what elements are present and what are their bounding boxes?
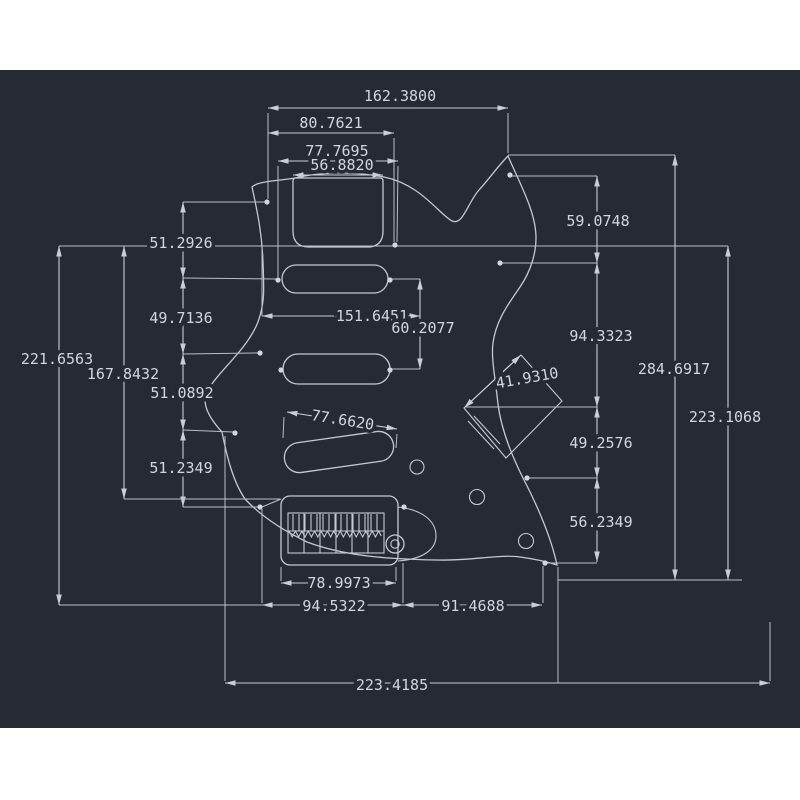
dim-label-223-4185: 223.4185 bbox=[356, 676, 428, 694]
dim-label-80-7621: 80.7621 bbox=[299, 114, 362, 132]
dim-label-94-5322: 94.5322 bbox=[302, 597, 365, 615]
drawing-background bbox=[0, 70, 800, 728]
cad-drawing-canvas: 162.3800 80.7621 77.7695 56.8820 51.2926… bbox=[0, 0, 800, 800]
dim-label-51-0892: 51.0892 bbox=[150, 384, 213, 402]
dim-label-221-6563: 221.6563 bbox=[21, 350, 93, 368]
dim-label-51-2926: 51.2926 bbox=[149, 234, 212, 252]
dim-label-59-0748: 59.0748 bbox=[566, 212, 629, 230]
dim-label-162-3800: 162.3800 bbox=[364, 87, 436, 105]
cad-screenshot: 162.3800 80.7621 77.7695 56.8820 51.2926… bbox=[0, 0, 800, 800]
dim-label-60-2077: 60.2077 bbox=[391, 319, 454, 337]
dim-label-284-6917: 284.6917 bbox=[638, 360, 710, 378]
dim-label-56-2349: 56.2349 bbox=[569, 513, 632, 531]
dim-label-49-2576: 49.2576 bbox=[569, 434, 632, 452]
dim-label-51-2349: 51.2349 bbox=[149, 459, 212, 477]
dim-label-167-8432: 167.8432 bbox=[87, 365, 159, 383]
dim-label-94-3323: 94.3323 bbox=[569, 327, 632, 345]
dim-label-223-1068: 223.1068 bbox=[689, 408, 761, 426]
dim-label-78-9973: 78.9973 bbox=[307, 574, 370, 592]
dim-label-91-4688: 91.4688 bbox=[441, 597, 504, 615]
dim-label-49-7136: 49.7136 bbox=[149, 309, 212, 327]
dim-label-56-8820: 56.8820 bbox=[310, 156, 373, 174]
